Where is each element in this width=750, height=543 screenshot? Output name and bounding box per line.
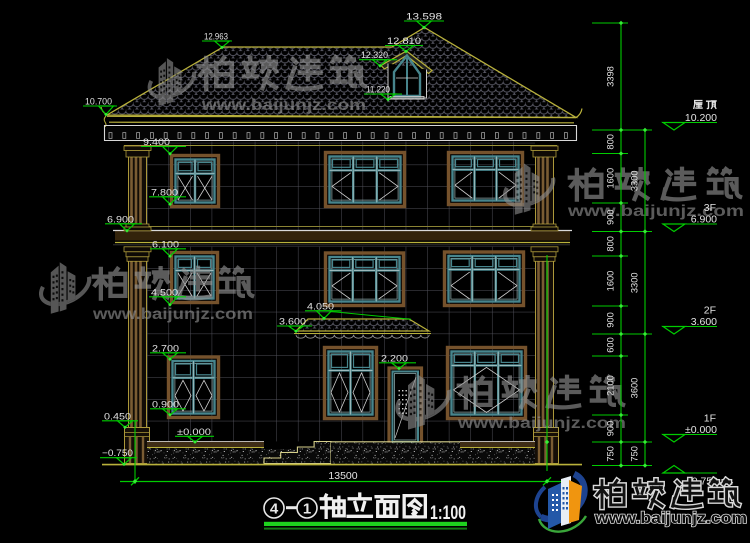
svg-text:2F: 2F	[704, 305, 716, 317]
svg-text:4.050: 4.050	[307, 301, 334, 311]
svg-text:3F: 3F	[704, 202, 716, 214]
svg-text:4.500: 4.500	[151, 287, 178, 297]
svg-text:600: 600	[606, 337, 616, 353]
svg-text:3600: 3600	[630, 378, 640, 399]
svg-text:6.900: 6.900	[107, 214, 134, 224]
svg-text:1600: 1600	[606, 271, 616, 292]
svg-text:750: 750	[606, 446, 616, 462]
svg-text:www.baijunjz.com: www.baijunjz.com	[567, 203, 744, 220]
svg-text:3300: 3300	[630, 170, 640, 191]
svg-text:www.baijunjz.com: www.baijunjz.com	[594, 510, 747, 527]
svg-text:0.450: 0.450	[104, 411, 131, 421]
svg-text:2.700: 2.700	[152, 343, 179, 353]
svg-text:3398: 3398	[606, 66, 616, 87]
svg-text:4: 4	[270, 501, 279, 518]
svg-text:www.baijunjz.com: www.baijunjz.com	[92, 306, 253, 323]
svg-text:13500: 13500	[328, 470, 357, 482]
svg-text:12.963: 12.963	[204, 32, 228, 42]
svg-text:750: 750	[630, 446, 640, 462]
svg-text:www.baijunjz.com: www.baijunjz.com	[201, 97, 366, 114]
svg-text:800: 800	[606, 236, 616, 252]
svg-text:12.810: 12.810	[387, 36, 421, 46]
svg-text:1F: 1F	[704, 413, 716, 425]
svg-text:6.100: 6.100	[152, 239, 179, 249]
svg-text:900: 900	[606, 421, 616, 437]
svg-text:www.baijunjz.com: www.baijunjz.com	[457, 415, 626, 432]
svg-text:±0.000: ±0.000	[177, 427, 211, 437]
svg-text:1600: 1600	[606, 168, 616, 189]
svg-text:−0.750: −0.750	[102, 448, 133, 458]
svg-text:0.900: 0.900	[152, 399, 179, 409]
svg-text:1: 1	[303, 501, 311, 518]
svg-text:3.600: 3.600	[279, 317, 306, 327]
svg-text:12.320: 12.320	[361, 50, 388, 60]
svg-text:900: 900	[606, 312, 616, 328]
svg-text:11.220: 11.220	[366, 85, 390, 95]
svg-text:800: 800	[606, 134, 616, 150]
svg-text:2100: 2100	[606, 375, 616, 396]
svg-text:7.800: 7.800	[151, 187, 178, 197]
svg-text:13.598: 13.598	[406, 11, 442, 21]
svg-text:1:100: 1:100	[430, 503, 466, 524]
svg-text:10.700: 10.700	[85, 97, 112, 107]
svg-text:900: 900	[606, 209, 616, 225]
svg-text:2.200: 2.200	[381, 353, 408, 363]
svg-text:9.400: 9.400	[143, 137, 170, 147]
svg-text:3300: 3300	[630, 272, 640, 293]
